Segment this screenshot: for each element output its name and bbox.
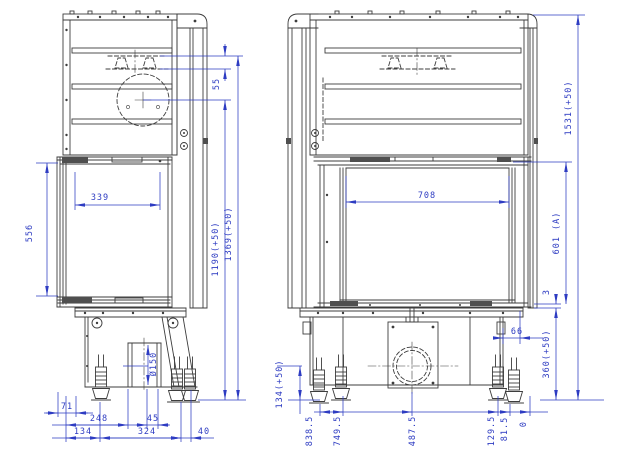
front-view-frame-rail-left: [286, 14, 318, 308]
air-slat: [72, 48, 172, 53]
dim-sill-gap: 3: [542, 289, 552, 295]
dim-side-clearance: 66: [511, 327, 523, 337]
side-view-casing: [63, 11, 188, 155]
dim-front-offset: 71: [61, 402, 73, 412]
front-view-casing: [310, 11, 528, 155]
adjustable-foot: [310, 358, 329, 403]
air-slat: [325, 84, 521, 89]
air-slat: [325, 48, 521, 53]
dim-damper-drop: 55: [212, 78, 222, 90]
dim-datum-4: 81.5: [500, 417, 510, 441]
front-view: [286, 11, 538, 403]
adjustable-foot: [332, 355, 351, 400]
air-inlet-plate: [388, 322, 438, 388]
dim-foot-front-distance: 134: [74, 427, 92, 437]
dim-datum-2: 487.5: [408, 416, 418, 447]
dim-flue-axis-height: 1190(+50): [211, 221, 221, 276]
side-view-plinth: [75, 308, 200, 402]
technical-drawing-page: 55 339 556 1190(+50) 1369(+50) Ø150 71 2…: [0, 0, 624, 460]
damper-mechanism-hidden: [380, 56, 455, 69]
dim-foot-spacing: 324: [138, 427, 156, 437]
dim-glass-width: 708: [418, 191, 436, 201]
dim-plinth-height: 360(+50): [542, 330, 552, 379]
dim-air-axis-height: 134(+50): [275, 360, 285, 409]
dim-datum-5: 0: [519, 421, 529, 427]
dim-datum-0: 838.5: [305, 416, 315, 447]
dim-total-height: 1531(+50): [564, 80, 574, 135]
dim-damper-height: 1369(+50): [224, 206, 234, 261]
adjustable-foot: [92, 355, 111, 400]
dim-datum-1: 749.5: [333, 416, 343, 447]
dim-rear-overhang: 40: [198, 427, 210, 437]
side-view-door: [57, 157, 172, 307]
adjustable-foot: [181, 357, 200, 402]
side-view: [57, 11, 208, 402]
dim-glass-depth: 339: [91, 193, 109, 203]
front-view-plinth: [300, 308, 524, 403]
adjustable-foot: [489, 355, 508, 400]
dim-duct-diameter: Ø150: [148, 352, 159, 376]
dim-door-height: 556: [25, 224, 35, 242]
dim-datum-3: 129.5: [487, 416, 497, 447]
dimension-labels: 55 339 556 1190(+50) 1369(+50) Ø150 71 2…: [25, 78, 574, 446]
dim-duct-front-distance: 248: [90, 414, 108, 424]
dim-glass-height: 601 (A): [552, 212, 562, 255]
dim-duct-offset: 45: [147, 414, 159, 424]
adjustable-foot: [505, 358, 524, 403]
air-slat: [325, 119, 521, 124]
damper-mechanism-hidden: [106, 56, 168, 69]
front-view-door: [314, 157, 531, 307]
drawing-canvas: 55 339 556 1190(+50) 1369(+50) Ø150 71 2…: [0, 0, 624, 460]
side-view-frame-rail: [177, 14, 208, 308]
